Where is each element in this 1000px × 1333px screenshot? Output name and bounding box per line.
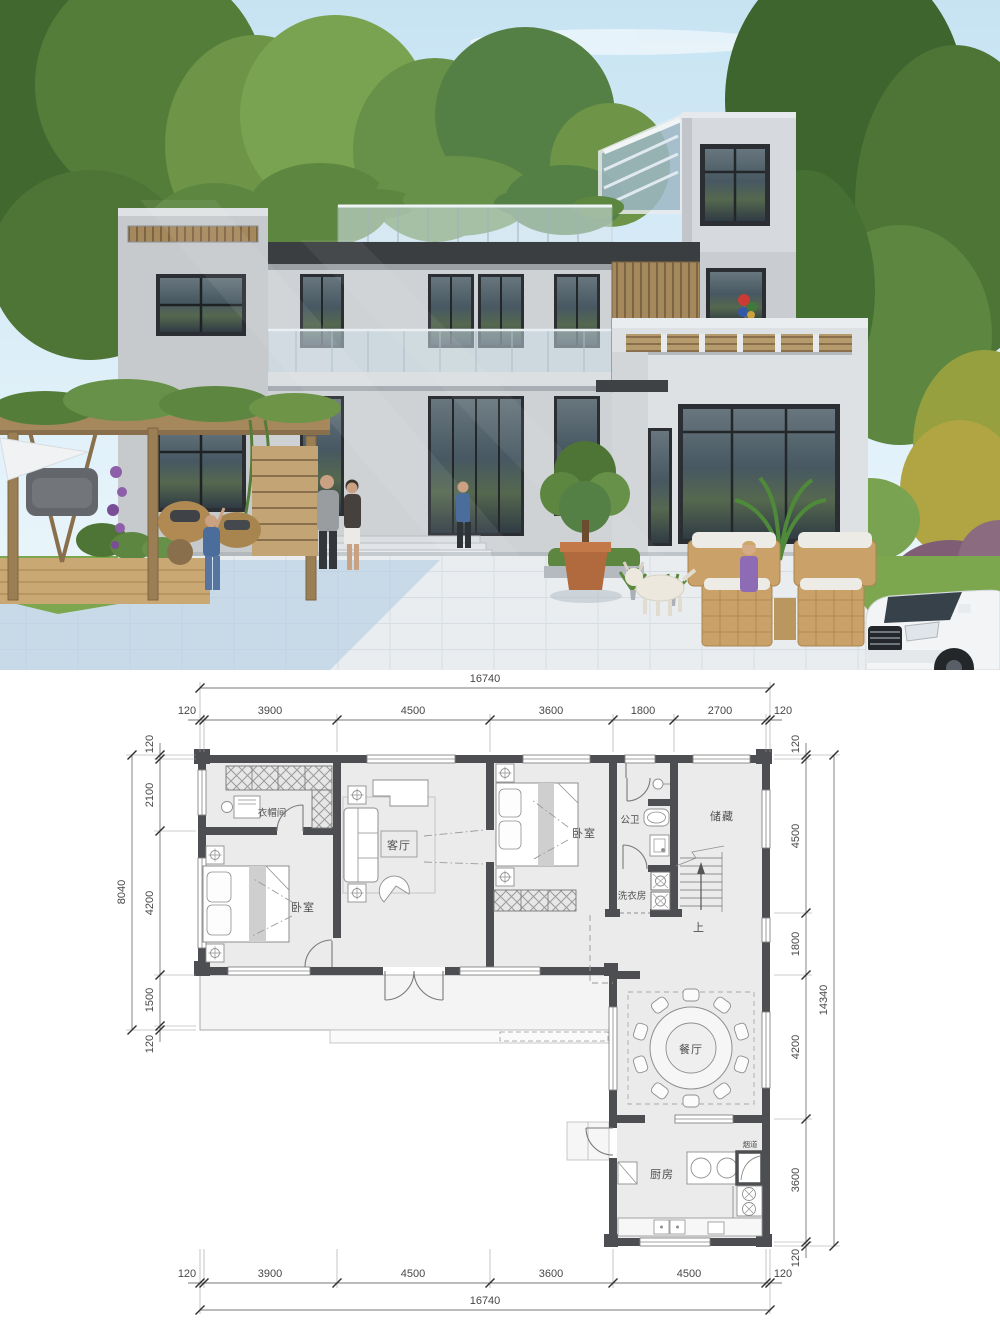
rattan-cube-1 <box>702 578 772 646</box>
wing-window-narrow <box>648 428 672 546</box>
roof-terrace-railing <box>338 206 612 242</box>
dim-left-total: 8040 <box>116 880 128 904</box>
car <box>866 590 1000 670</box>
rattan-cube-2 <box>798 578 864 646</box>
rooftop-window <box>700 144 770 226</box>
wing-canopy <box>596 380 668 392</box>
dim-bottom-seg-5: 120 <box>774 1268 792 1280</box>
right-wing <box>596 318 868 556</box>
dim-bottom-seg-2: 4500 <box>401 1268 425 1280</box>
room-label-storage: 储藏 <box>710 809 734 823</box>
dim-left-seg-4: 120 <box>144 1035 156 1053</box>
dim-bottom-seg-3: 3600 <box>539 1268 563 1280</box>
child-purple <box>740 541 758 592</box>
room-label-laundry: 洗衣房 <box>618 890 647 902</box>
room-label-bathroom: 公卫 <box>620 815 640 826</box>
dim-bottom-seg-1: 3900 <box>258 1268 282 1280</box>
room-label-living: 客厅 <box>387 838 411 852</box>
pergola-slat-panel <box>252 446 318 556</box>
dim-right-seg-4: 3600 <box>790 1168 802 1192</box>
house-rendering <box>0 0 1000 670</box>
dim-top-seg-1: 3900 <box>258 705 282 717</box>
room-label-kitchen: 厨房 <box>650 1168 674 1181</box>
dim-left-seg-2: 4200 <box>144 891 156 915</box>
dim-bottom-seg-4: 4500 <box>677 1268 701 1280</box>
dim-right-total: 14340 <box>818 985 830 1016</box>
dim-top-seg-5: 2700 <box>708 705 732 717</box>
floor-plan: 衣帽间 客厅 卧室 卧室 公卫 储藏 洗衣房 上 餐厅 厨房 烟道 <box>0 670 1000 1333</box>
room-label-cloakroom: 衣帽间 <box>258 807 287 819</box>
room-label-bedroom-right: 卧室 <box>572 826 596 840</box>
rooftop-box <box>682 112 796 254</box>
page: 衣帽间 客厅 卧室 卧室 公卫 储藏 洗衣房 上 餐厅 厨房 烟道 <box>0 0 1000 1333</box>
dim-right-seg-5: 120 <box>790 1249 802 1267</box>
dim-bottom-total: 16740 <box>470 1295 501 1307</box>
flue <box>737 1152 762 1184</box>
tower-mid <box>700 252 796 322</box>
flue-label: 烟道 <box>743 1139 758 1149</box>
dim-left-seg-3: 1500 <box>144 988 156 1012</box>
dim-top-total: 16740 <box>470 673 501 685</box>
dim-top-seg-6: 120 <box>774 705 792 717</box>
dim-left-seg-0: 120 <box>144 735 156 753</box>
dim-left-seg-1: 2100 <box>144 783 156 807</box>
dim-top-seg-3: 3600 <box>539 705 563 717</box>
dim-right-seg-3: 4200 <box>790 1035 802 1059</box>
room-label-dining: 餐厅 <box>679 1042 703 1056</box>
dim-right-seg-1: 4500 <box>790 824 802 848</box>
dim-top-seg-4: 1800 <box>631 705 655 717</box>
stair-up-label: 上 <box>693 921 705 934</box>
wing-window-large <box>678 404 840 544</box>
dim-bottom-seg-0: 120 <box>178 1268 196 1280</box>
dim-top-seg-2: 4500 <box>401 705 425 717</box>
dim-right-seg-2: 1800 <box>790 932 802 956</box>
room-label-bedroom-left: 卧室 <box>291 900 315 914</box>
dim-right-seg-0: 120 <box>790 735 802 753</box>
dim-top-seg-0: 120 <box>178 705 196 717</box>
